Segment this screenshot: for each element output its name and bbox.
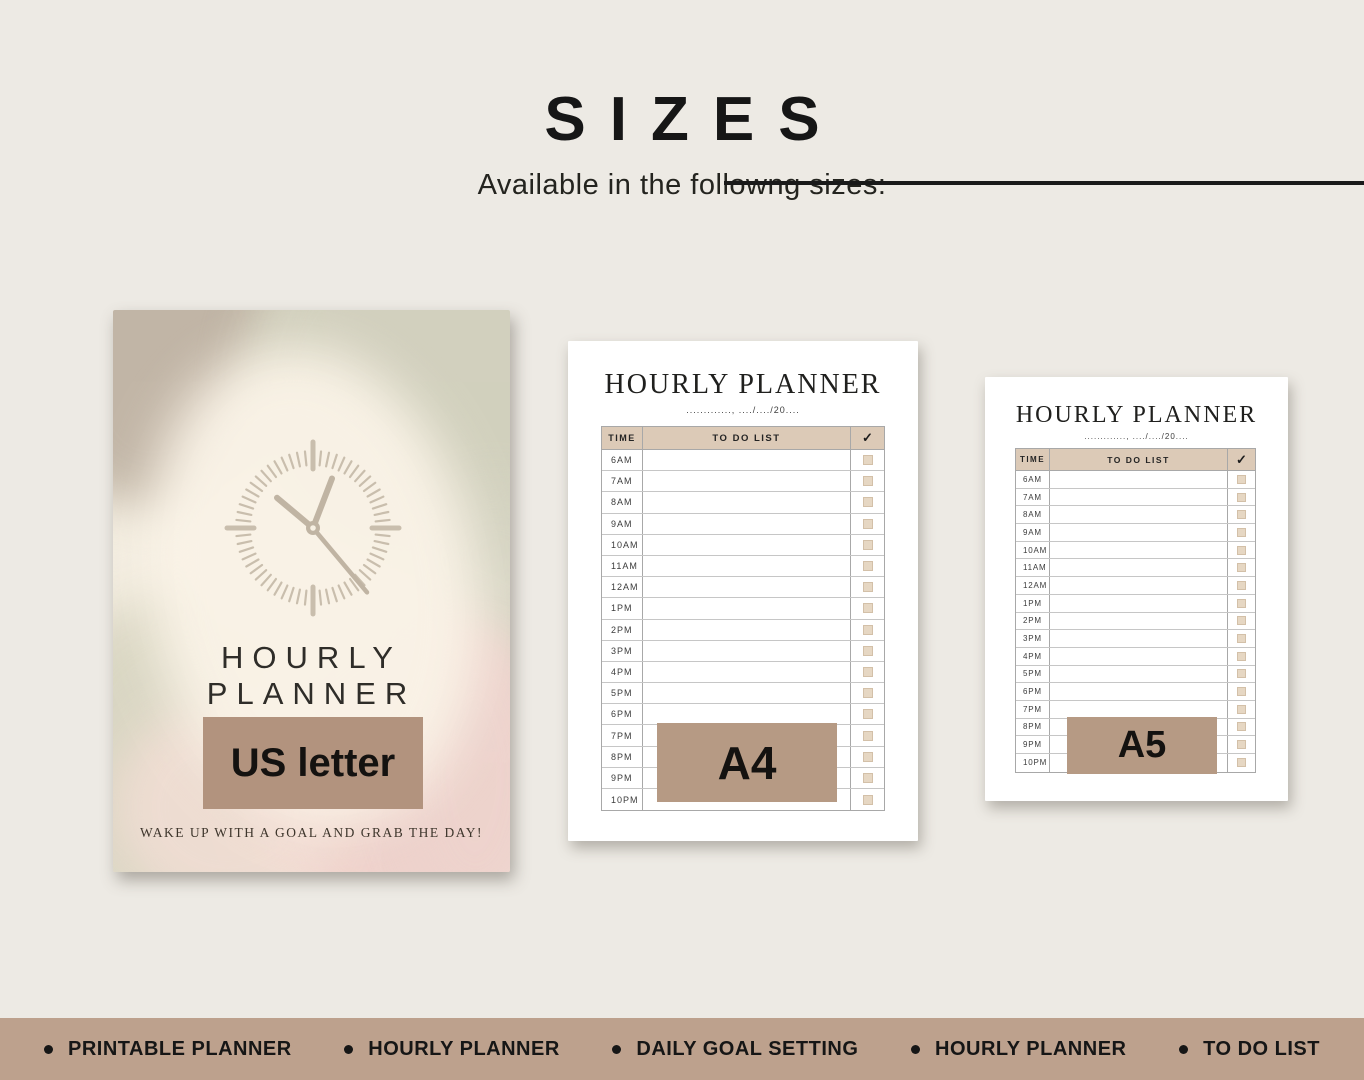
todo-cell	[643, 492, 850, 512]
time-cell: 6PM	[602, 704, 643, 724]
checkbox-icon	[1237, 528, 1246, 537]
checkbox-icon	[1237, 722, 1246, 731]
check-cell	[1227, 648, 1255, 665]
time-cell: 7PM	[602, 725, 643, 745]
planner-date-line: ............., ..../..../20....	[985, 432, 1288, 441]
time-cell: 5PM	[602, 683, 643, 703]
check-cell	[1227, 542, 1255, 559]
check-cell	[1227, 489, 1255, 506]
table-row: 7PM	[1016, 701, 1255, 719]
todo-cell	[643, 450, 850, 470]
checkbox-icon	[863, 519, 873, 529]
todo-cell	[1050, 683, 1227, 700]
footer-bar: PRINTABLE PLANNER HOURLY PLANNER DAILY G…	[0, 1018, 1364, 1080]
cover-tagline: WAKE UP WITH A GOAL AND GRAB THE DAY!	[113, 825, 510, 841]
col-header-check checkmark-icon: ✓	[1227, 449, 1255, 470]
checkbox-icon	[863, 731, 873, 741]
check-cell	[850, 598, 884, 618]
us-letter-cover-mockup: HOURLY PLANNER US letter WAKE UP WITH A …	[113, 310, 510, 872]
todo-cell	[643, 514, 850, 534]
time-cell: 2PM	[1016, 613, 1050, 630]
check-cell	[850, 471, 884, 491]
footer-keyword-label: PRINTABLE PLANNER	[68, 1038, 292, 1061]
todo-cell	[1050, 559, 1227, 576]
time-cell: 2PM	[602, 620, 643, 640]
time-cell: 7AM	[602, 471, 643, 491]
check-cell	[1227, 595, 1255, 612]
checkbox-icon	[863, 667, 873, 677]
check-cell	[850, 768, 884, 788]
checkbox-icon	[1237, 493, 1246, 502]
todo-cell	[1050, 471, 1227, 488]
bullet-icon	[911, 1045, 920, 1054]
table-row: 6PM	[1016, 683, 1255, 701]
bullet-icon	[344, 1045, 353, 1054]
footer-keyword-label: HOURLY PLANNER	[368, 1038, 559, 1061]
todo-cell	[1050, 613, 1227, 630]
planner-table-header: TIME TO DO LIST ✓	[1016, 449, 1255, 471]
checkbox-icon	[1237, 758, 1246, 767]
todo-cell	[1050, 701, 1227, 718]
check-cell	[850, 641, 884, 661]
time-cell: 6AM	[1016, 471, 1050, 488]
time-cell: 8AM	[1016, 506, 1050, 523]
clock-center-hole	[310, 525, 316, 531]
table-row: 12AM	[1016, 577, 1255, 595]
col-header-check checkmark-icon: ✓	[850, 427, 884, 449]
todo-cell	[1050, 577, 1227, 594]
checkbox-icon	[1237, 475, 1246, 484]
time-cell: 9PM	[602, 768, 643, 788]
todo-cell	[643, 471, 850, 491]
check-cell	[1227, 719, 1255, 736]
time-cell: 3PM	[602, 641, 643, 661]
checkbox-icon	[863, 646, 873, 656]
check-cell	[850, 514, 884, 534]
check-cell	[850, 747, 884, 767]
todo-cell	[1050, 648, 1227, 665]
check-cell	[1227, 524, 1255, 541]
bullet-icon	[44, 1045, 53, 1054]
time-cell: 4PM	[602, 662, 643, 682]
check-cell	[850, 704, 884, 724]
checkbox-icon	[863, 752, 873, 762]
check-cell	[850, 556, 884, 576]
footer-keyword-label: HOURLY PLANNER	[935, 1038, 1126, 1061]
time-cell: 1PM	[602, 598, 643, 618]
time-cell: 9AM	[1016, 524, 1050, 541]
check-cell	[1227, 754, 1255, 772]
checkbox-icon	[1237, 687, 1246, 696]
page-subtitle: Available in the followng sizes:	[0, 169, 1364, 202]
check-cell	[1227, 506, 1255, 523]
bullet-icon	[1179, 1045, 1188, 1054]
footer-keyword: TO DO LIST	[1179, 1038, 1320, 1061]
table-row: 10AM	[602, 535, 884, 556]
table-row: 1PM	[602, 598, 884, 619]
time-cell: 7AM	[1016, 489, 1050, 506]
check-cell	[1227, 701, 1255, 718]
footer-keyword-label: DAILY GOAL SETTING	[636, 1038, 858, 1061]
time-cell: 12AM	[602, 577, 643, 597]
planner-title: HOURLY PLANNER	[568, 341, 918, 401]
check-cell	[850, 492, 884, 512]
time-cell: 8PM	[602, 747, 643, 767]
checkbox-icon	[1237, 510, 1246, 519]
time-cell: 9PM	[1016, 736, 1050, 753]
check-cell	[850, 620, 884, 640]
col-header-time: TIME	[602, 427, 643, 449]
todo-cell	[1050, 666, 1227, 683]
footer-keyword: HOURLY PLANNER	[911, 1038, 1126, 1061]
us-letter-size-label: US letter	[231, 741, 396, 786]
todo-cell	[1050, 524, 1227, 541]
checkbox-icon	[1237, 705, 1246, 714]
table-row: 8AM	[602, 492, 884, 513]
a4-size-badge: A4	[657, 723, 837, 802]
check-cell	[850, 789, 884, 810]
page: SIZES Available in the followng sizes: H…	[0, 0, 1364, 1080]
page-title: SIZES	[0, 0, 1364, 155]
todo-cell	[1050, 489, 1227, 506]
table-row: 9AM	[602, 514, 884, 535]
clock-icon	[213, 428, 413, 628]
clock-hour-hand	[277, 498, 313, 528]
table-row: 8AM	[1016, 506, 1255, 524]
table-row: 4PM	[1016, 648, 1255, 666]
check-cell	[1227, 613, 1255, 630]
time-cell: 8PM	[1016, 719, 1050, 736]
col-header-time: TIME	[1016, 449, 1050, 470]
checkbox-icon	[1237, 581, 1246, 590]
time-cell: 11AM	[1016, 559, 1050, 576]
time-cell: 12AM	[1016, 577, 1050, 594]
us-letter-size-badge: US letter	[203, 717, 423, 809]
a5-size-badge: A5	[1067, 717, 1217, 774]
todo-cell	[643, 683, 850, 703]
table-row: 3PM	[1016, 630, 1255, 648]
check-cell	[850, 577, 884, 597]
a4-planner-mockup: HOURLY PLANNER ............., ..../..../…	[568, 341, 918, 841]
table-row: 12AM	[602, 577, 884, 598]
checkbox-icon	[1237, 669, 1246, 678]
footer-keyword: PRINTABLE PLANNER	[44, 1038, 292, 1061]
clock-minute-hand	[313, 479, 332, 528]
planner-date-line: ............., ..../..../20....	[568, 405, 918, 415]
todo-cell	[1050, 542, 1227, 559]
todo-cell	[643, 577, 850, 597]
table-row: 9AM	[1016, 524, 1255, 542]
checkbox-icon	[1237, 740, 1246, 749]
table-row: 4PM	[602, 662, 884, 683]
planner-title: HOURLY PLANNER	[985, 377, 1288, 429]
footer-keyword-label: TO DO LIST	[1203, 1038, 1320, 1061]
checkbox-icon	[863, 455, 873, 465]
a5-planner-mockup: HOURLY PLANNER ............., ..../..../…	[985, 377, 1288, 801]
time-cell: 4PM	[1016, 648, 1050, 665]
time-cell: 3PM	[1016, 630, 1050, 647]
todo-cell	[643, 641, 850, 661]
table-row: 5PM	[602, 683, 884, 704]
checkbox-icon	[863, 625, 873, 635]
a4-size-label: A4	[718, 736, 777, 790]
todo-cell	[1050, 595, 1227, 612]
checkbox-icon	[863, 497, 873, 507]
table-row: 7AM	[602, 471, 884, 492]
table-row: 2PM	[1016, 613, 1255, 631]
checkbox-icon	[1237, 546, 1246, 555]
col-header-todo: TO DO LIST	[1050, 449, 1227, 470]
todo-cell	[643, 704, 850, 724]
todo-cell	[643, 598, 850, 618]
checkbox-icon	[1237, 652, 1246, 661]
time-cell: 1PM	[1016, 595, 1050, 612]
table-row: 11AM	[1016, 559, 1255, 577]
check-cell	[1227, 630, 1255, 647]
time-cell: 6PM	[1016, 683, 1050, 700]
check-cell	[1227, 559, 1255, 576]
todo-cell	[643, 620, 850, 640]
check-cell	[1227, 736, 1255, 753]
check-cell	[850, 725, 884, 745]
checkbox-icon	[863, 582, 873, 592]
checkbox-icon	[1237, 616, 1246, 625]
table-row: 1PM	[1016, 595, 1255, 613]
checkbox-icon	[863, 603, 873, 613]
a5-size-label: A5	[1118, 724, 1167, 767]
time-cell: 10PM	[1016, 754, 1050, 772]
table-row: 3PM	[602, 641, 884, 662]
time-cell: 10PM	[602, 789, 643, 810]
time-cell: 5PM	[1016, 666, 1050, 683]
bullet-icon	[612, 1045, 621, 1054]
table-row: 6AM	[1016, 471, 1255, 489]
checkbox-icon	[863, 540, 873, 550]
time-cell: 11AM	[602, 556, 643, 576]
footer-keyword: DAILY GOAL SETTING	[612, 1038, 858, 1061]
todo-cell	[643, 535, 850, 555]
table-row: 11AM	[602, 556, 884, 577]
check-cell	[850, 535, 884, 555]
checkbox-icon	[863, 709, 873, 719]
time-cell: 7PM	[1016, 701, 1050, 718]
checkbox-icon	[863, 688, 873, 698]
table-row: 6AM	[602, 450, 884, 471]
checkbox-icon	[1237, 563, 1246, 572]
checkbox-icon	[1237, 599, 1246, 608]
col-header-todo: TO DO LIST	[643, 427, 850, 449]
todo-cell	[1050, 630, 1227, 647]
checkbox-icon	[1237, 634, 1246, 643]
checkbox-icon	[863, 795, 873, 805]
todo-cell	[643, 556, 850, 576]
planner-table-header: TIME TO DO LIST ✓	[602, 427, 884, 450]
time-cell: 8AM	[602, 492, 643, 512]
todo-cell	[643, 662, 850, 682]
cover-title: HOURLY PLANNER	[113, 640, 510, 712]
check-cell	[1227, 666, 1255, 683]
table-row: 5PM	[1016, 666, 1255, 684]
todo-cell	[1050, 506, 1227, 523]
table-row: 10AM	[1016, 542, 1255, 560]
table-row: 2PM	[602, 620, 884, 641]
check-cell	[1227, 577, 1255, 594]
clock-hands	[277, 479, 367, 593]
check-cell	[1227, 683, 1255, 700]
checkbox-icon	[863, 561, 873, 571]
checkbox-icon	[863, 476, 873, 486]
time-cell: 10AM	[1016, 542, 1050, 559]
time-cell: 10AM	[602, 535, 643, 555]
header-rule	[724, 181, 1364, 185]
table-row: 7AM	[1016, 489, 1255, 507]
check-cell	[850, 450, 884, 470]
check-cell	[850, 683, 884, 703]
checkbox-icon	[863, 773, 873, 783]
check-cell	[850, 662, 884, 682]
time-cell: 9AM	[602, 514, 643, 534]
clock-second-hand	[313, 528, 367, 592]
footer-keyword: HOURLY PLANNER	[344, 1038, 559, 1061]
check-cell	[1227, 471, 1255, 488]
time-cell: 6AM	[602, 450, 643, 470]
